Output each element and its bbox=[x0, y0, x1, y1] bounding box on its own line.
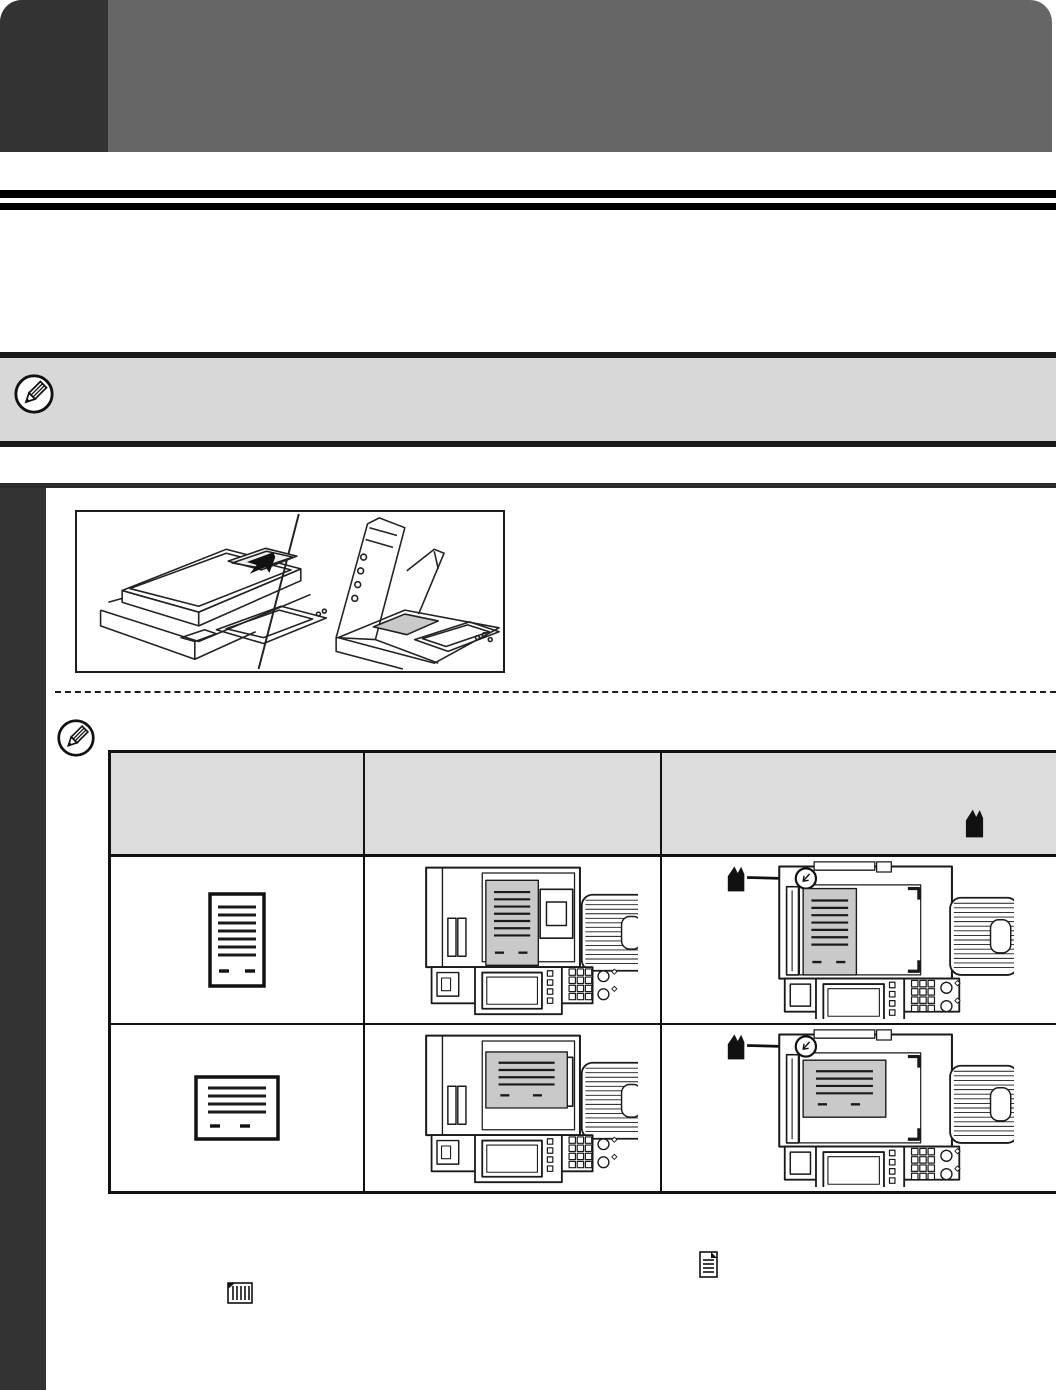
chapter-number-tab bbox=[0, 0, 108, 152]
manual-page bbox=[0, 0, 1056, 1390]
machine-perspective-drawing bbox=[77, 512, 503, 671]
document-horizontal-lines-icon bbox=[699, 1251, 718, 1278]
cell-document-feeder bbox=[364, 1024, 661, 1193]
dashed-divider bbox=[55, 691, 1056, 693]
placement-row-landscape bbox=[110, 1024, 1056, 1193]
corner-alignment-mark-icon bbox=[966, 810, 983, 838]
document-feeder-and-document-glass-illustration bbox=[75, 510, 505, 673]
column-header-document-glass bbox=[661, 752, 1056, 856]
chapter-header-band bbox=[0, 0, 1052, 152]
table-header-row bbox=[110, 752, 1056, 856]
pencil-icon bbox=[56, 718, 96, 758]
document-glass-placement-illustration bbox=[708, 1029, 1014, 1187]
original-on-machine bbox=[803, 1060, 886, 1117]
original-on-machine bbox=[485, 880, 537, 965]
placement-row-portrait bbox=[110, 856, 1056, 1025]
pencil-icon bbox=[13, 373, 55, 415]
document-vertical-lines-icon bbox=[227, 1282, 253, 1304]
corner-alignment-mark-icon bbox=[727, 1035, 744, 1060]
cell-original bbox=[110, 1024, 365, 1193]
cell-original bbox=[110, 856, 365, 1025]
cell-document-glass bbox=[661, 1024, 1056, 1193]
corner-alignment-mark-icon-slot bbox=[964, 807, 985, 839]
rule-bar bbox=[0, 203, 1056, 210]
original-on-machine bbox=[803, 889, 856, 975]
column-header-original bbox=[110, 752, 365, 856]
document-feeder-placement-illustration bbox=[388, 1032, 638, 1184]
rule-bar bbox=[0, 190, 1056, 198]
title-double-rule bbox=[0, 190, 1056, 210]
document-feeder-placement-illustration bbox=[388, 864, 638, 1016]
original-portrait-icon bbox=[208, 892, 266, 988]
note-box bbox=[0, 352, 1056, 447]
corner-alignment-mark-icon bbox=[727, 867, 744, 892]
original-landscape-icon bbox=[194, 1075, 280, 1141]
original-placement-table bbox=[108, 750, 1056, 1194]
cell-document-feeder bbox=[364, 856, 661, 1025]
section-top-rule bbox=[0, 483, 1056, 488]
column-header-document-feeder bbox=[364, 752, 661, 856]
original-on-machine bbox=[485, 1052, 566, 1108]
document-glass-placement-illustration bbox=[708, 861, 1014, 1019]
section-side-bar bbox=[0, 488, 46, 1390]
cell-document-glass bbox=[661, 856, 1056, 1025]
placement-table-body bbox=[110, 856, 1056, 1193]
